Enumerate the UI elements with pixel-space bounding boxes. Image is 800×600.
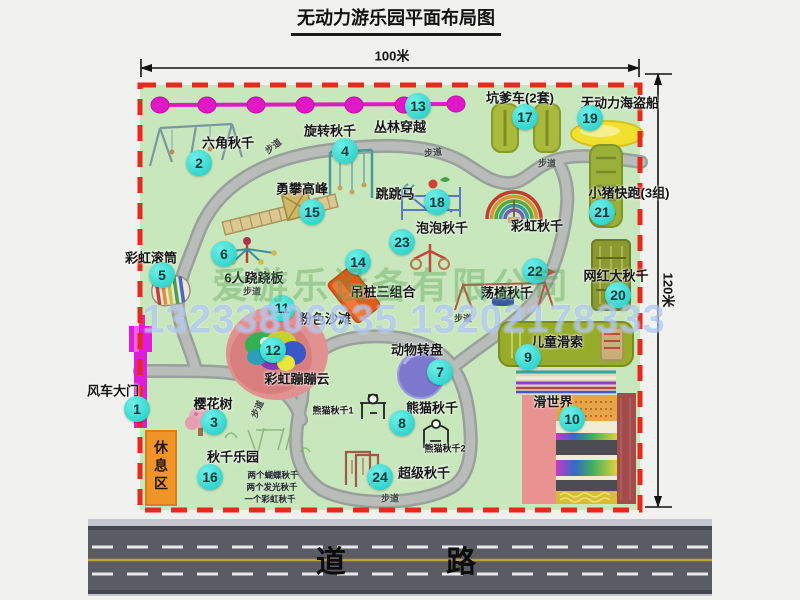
playground-plan-poster: 无动力游乐园平面布局图 100米 120米 休息区 道 路 风车大门1六角秋千2… xyxy=(0,0,800,600)
pirate-ship-icon xyxy=(571,121,643,147)
piggy-run-strip xyxy=(590,145,622,227)
height-dimension-label: 120米 xyxy=(660,273,679,308)
map-scene xyxy=(0,0,800,600)
road-label: 道 路 xyxy=(270,537,522,581)
rest-area-label: 休息区 xyxy=(151,440,171,494)
page-title: 无动力游乐园平面布局图 xyxy=(291,4,501,36)
kids-zipline-band xyxy=(499,322,633,366)
animal-carousel-circle xyxy=(398,352,444,398)
width-dimension-label: 100米 xyxy=(375,46,410,65)
big-swing-area xyxy=(592,240,630,310)
